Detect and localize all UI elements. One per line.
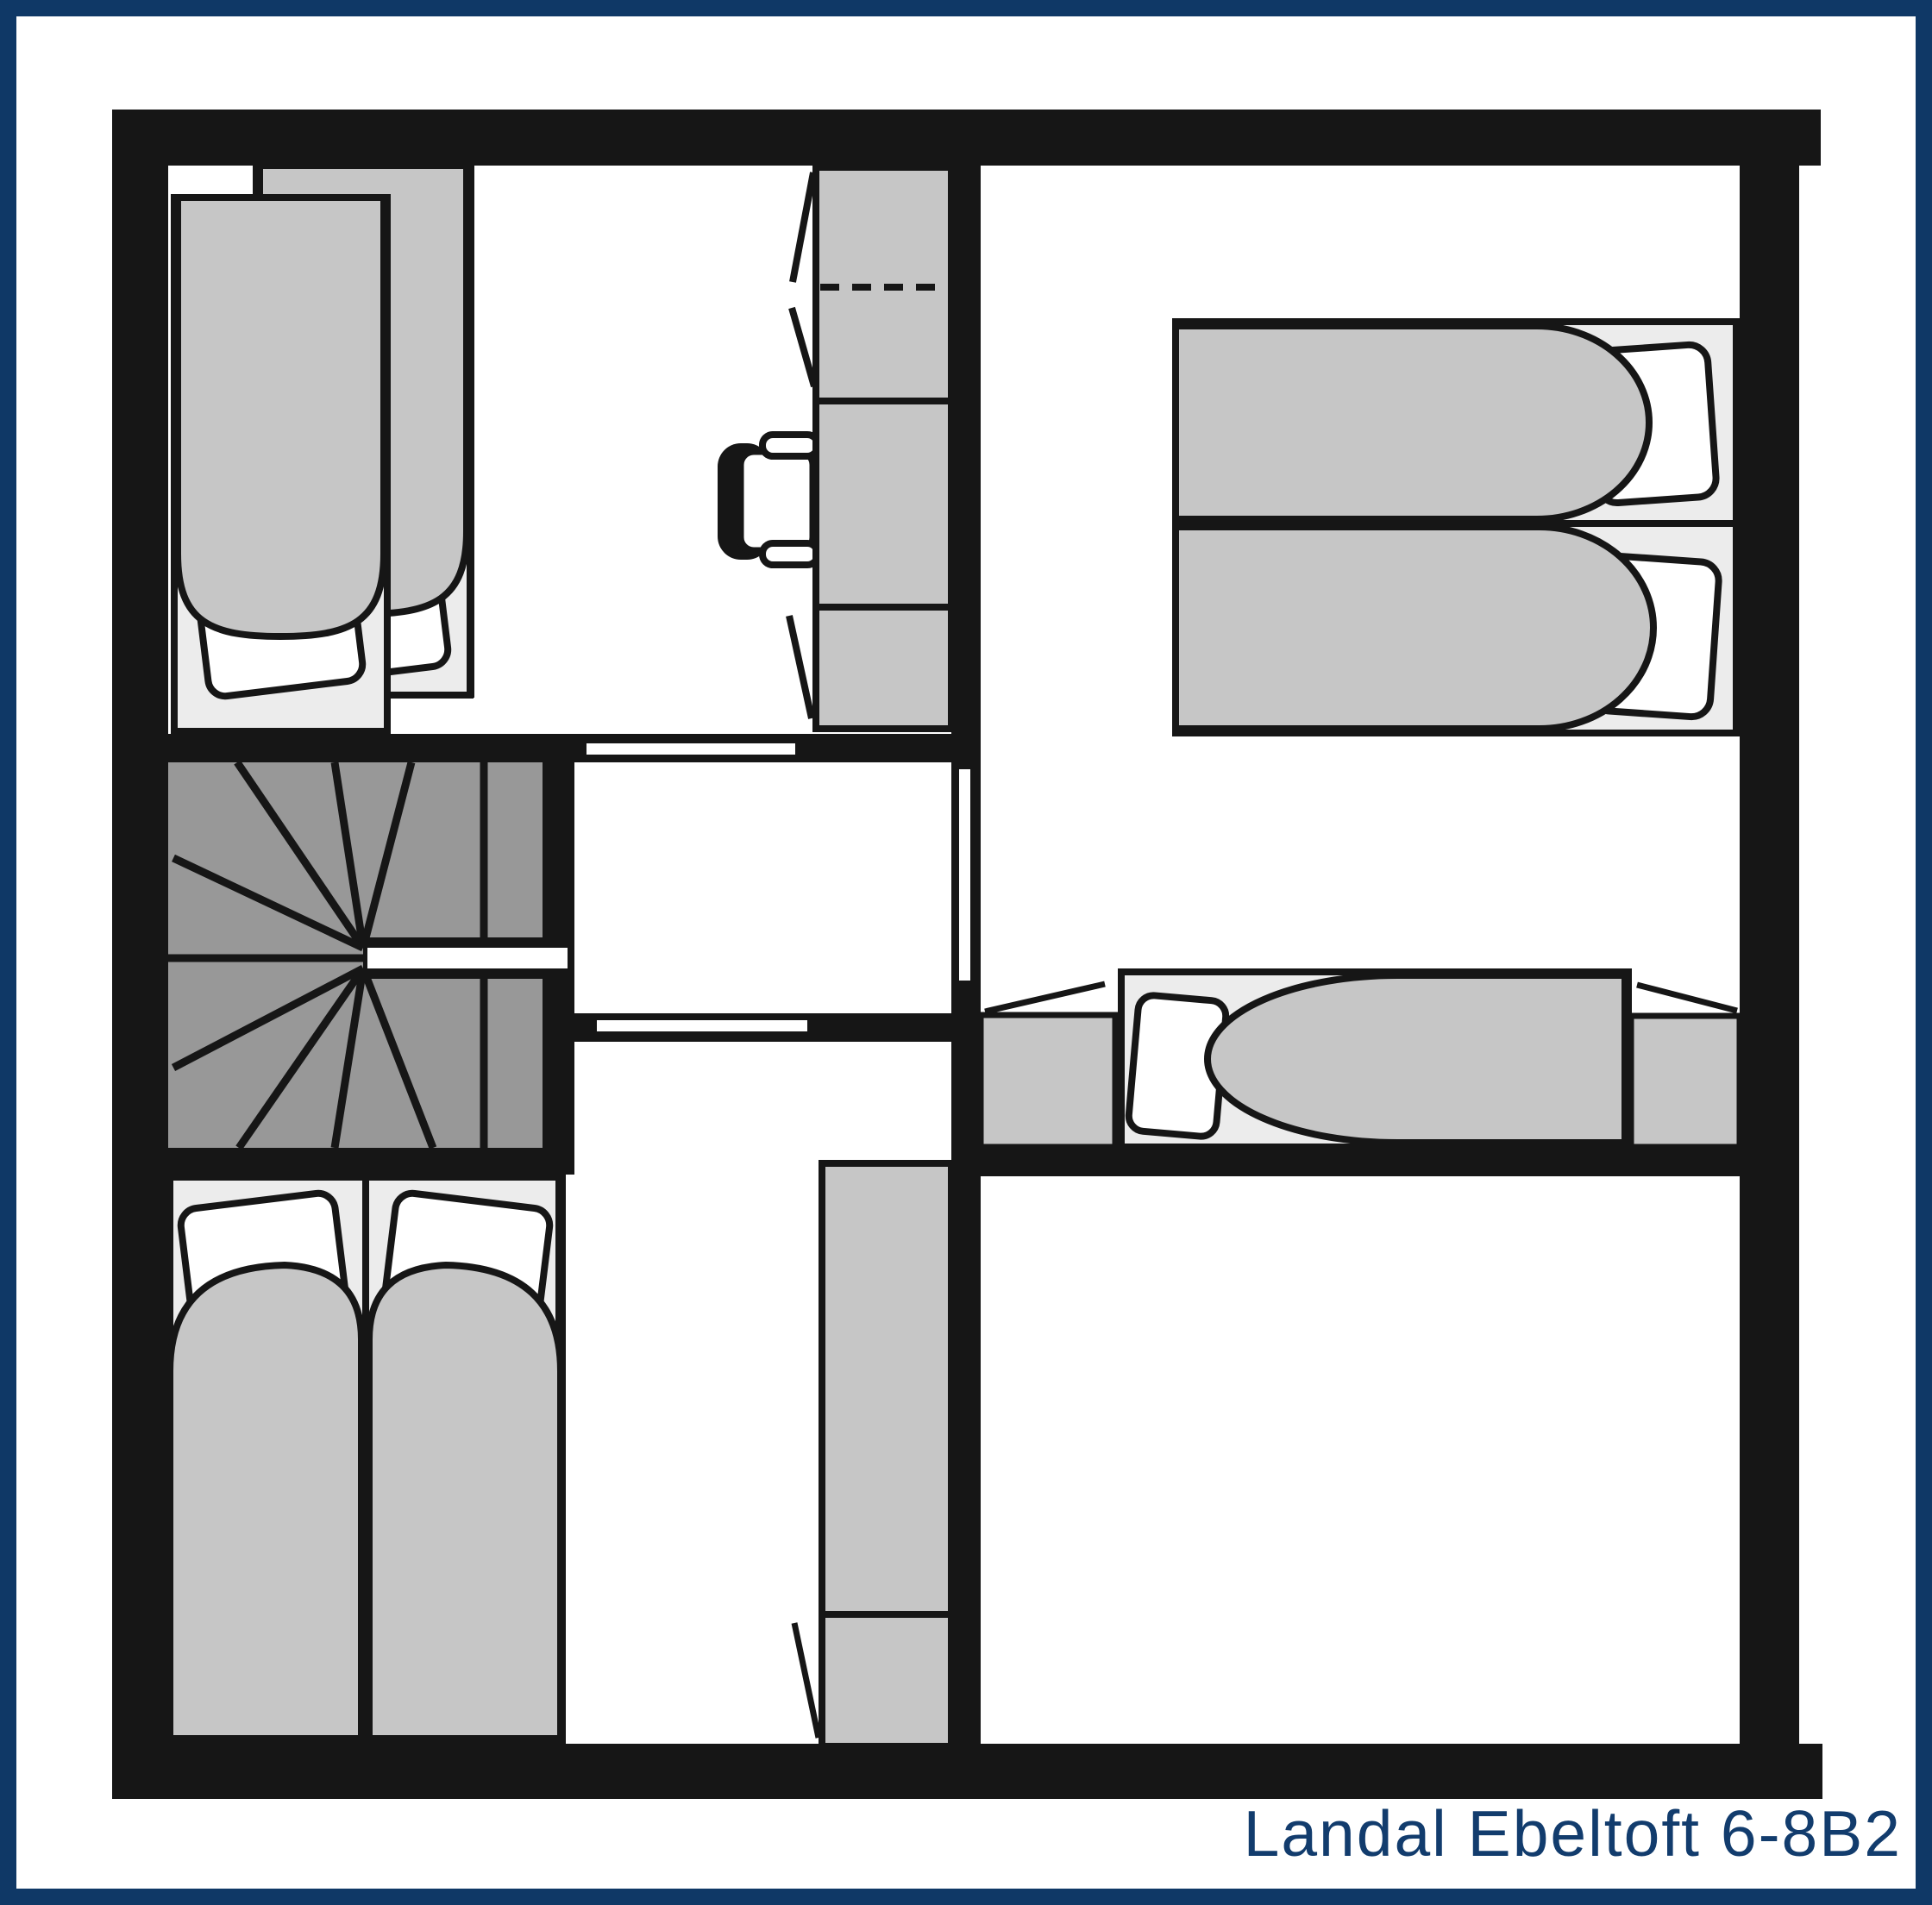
svg-text:Landal Ebeltoft 6-8B2: Landal Ebeltoft 6-8B2 xyxy=(1244,1797,1902,1870)
